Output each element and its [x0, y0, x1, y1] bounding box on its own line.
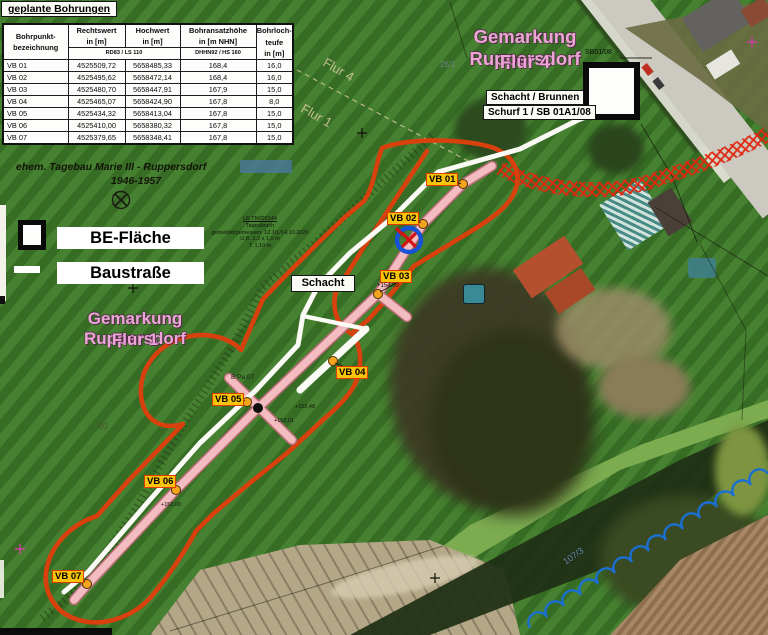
table-row: VB 04 4525465,07 5658424,90 167,8 8,0 — [3, 96, 293, 108]
cell: 15,0 — [256, 132, 293, 145]
table-row: VB 01 4525509,72 5658485,33 168,4 16,0 — [3, 60, 293, 72]
cell: 5658380,32 — [125, 120, 180, 132]
annotation-line: T. 1,10 m — [204, 243, 316, 250]
table-row: VB 06 4525410,00 5658380,32 167,8 15,0 — [3, 120, 293, 132]
bp-point-label: B Pu.07 — [231, 374, 254, 381]
legend-be-area-label: BE-Fläche — [57, 227, 204, 249]
elevation-label: +152,01 — [274, 418, 294, 424]
datum-header: DHHN92 / HS 160 — [180, 48, 256, 60]
cell: 8,0 — [256, 96, 293, 108]
cell: VB 02 — [3, 72, 68, 84]
cell: 5658424,90 — [125, 96, 180, 108]
cell: 4525480,70 — [68, 84, 125, 96]
table-row: VB 02 4525495,62 5658472,14 168,4 16,0 — [3, 72, 293, 84]
cell: 4525379,65 — [68, 132, 125, 145]
elevation-label: +152,48 — [295, 404, 315, 410]
datum-header: RD83 / LS 110 — [68, 48, 180, 60]
cell: 16,0 — [256, 60, 293, 72]
cell: VB 07 — [3, 132, 68, 145]
cell: VB 04 — [3, 96, 68, 108]
vb05-marker-label: VB 05 — [212, 393, 244, 406]
cell: 5658485,33 — [125, 60, 180, 72]
redaction-box — [240, 160, 292, 173]
cell: 5658447,91 — [125, 84, 180, 96]
vb03-marker-label: VB 03 — [380, 270, 412, 283]
vb02-marker-label: VB 02 — [387, 212, 419, 225]
col-header: Bohrpunkt- bezeichnung — [3, 24, 68, 60]
cell: 5658348,41 — [125, 132, 180, 145]
cell: 4525410,00 — [68, 120, 125, 132]
annotation-line: Tagesbruch — [204, 223, 316, 230]
red-hatched-fence — [500, 134, 768, 190]
cell: 5658472,14 — [125, 72, 180, 84]
cell: 167,8 — [180, 108, 256, 120]
vb01-marker-label: VB 01 — [426, 173, 458, 186]
cell: VB 05 — [3, 108, 68, 120]
tagebau-note-line2: 1946-1957 — [16, 175, 256, 187]
table-row: VB 07 4525379,65 5658348,41 167,8 15,0 — [3, 132, 293, 145]
cell: 167,8 — [180, 120, 256, 132]
vb06-marker-label: VB 06 — [144, 475, 176, 488]
col-header: Rechtswert in [m] — [68, 24, 125, 48]
cell: VB 01 — [3, 60, 68, 72]
shaft-dot — [253, 403, 263, 413]
schurf-label: Schurf 1 / SB 01A1/08 — [483, 105, 596, 120]
legend-road-symbol — [14, 266, 40, 273]
annotation-line: U,B. 1,2 x 1,0 m — [204, 236, 316, 243]
cell: 168,4 — [180, 72, 256, 84]
cell: 15,0 — [256, 84, 293, 96]
borehole-table: Bohrpunkt- bezeichnung Rechtswert in [m]… — [2, 23, 294, 145]
cell: 15,0 — [256, 108, 293, 120]
legend-road-label: Baustraße — [57, 262, 204, 284]
col-header: Hochwert in [m] — [125, 24, 180, 48]
site-plan-map: Flur 4 Flur 1 26/1 80 107/3 Gemarkung Ru… — [0, 0, 768, 635]
annotation-line: LB TN026144 — [204, 216, 316, 223]
cell: 15,0 — [256, 120, 293, 132]
ditch-scalloped-line — [528, 469, 768, 628]
table-row: VB 03 4525480,70 5658447,91 167,9 15,0 — [3, 84, 293, 96]
elevation-label: +152,00 — [161, 502, 181, 508]
schacht-label: Schacht — [291, 275, 355, 292]
sinkhole-annotation: LB TN026144 Tagesbruch gemeldet/gemessen… — [204, 216, 316, 250]
cell: 167,8 — [180, 132, 256, 145]
legend-be-area-symbol — [18, 220, 46, 250]
tagebau-note-line1: ehem. Tagebau Marie III - Ruppersdorf — [16, 161, 206, 173]
gemarkung-flur1-subtitle: Flur 1 — [37, 330, 233, 350]
cell: 168,4 — [180, 60, 256, 72]
cell: 4525434,32 — [68, 108, 125, 120]
cell: 4525509,72 — [68, 60, 125, 72]
parcel-number: 80 — [98, 421, 108, 431]
cell: 16,0 — [256, 72, 293, 84]
cell: 167,9 — [180, 84, 256, 96]
cell: 4525465,07 — [68, 96, 125, 108]
col-header: Bohrloch- teufe in [m] — [256, 24, 293, 60]
mining-symbol-icon — [113, 192, 130, 209]
vb07-marker-label: VB 07 — [52, 570, 84, 583]
vb04-marker-label: VB 04 — [336, 366, 368, 379]
col-header: Bohransatzhöhe in [m NHN] — [180, 24, 256, 48]
elevation-label: +154.00 — [377, 283, 399, 289]
cell: 167,8 — [180, 96, 256, 108]
cell: VB 03 — [3, 84, 68, 96]
table-title: geplante Bohrungen — [1, 1, 117, 17]
schacht-brunnen-label: Schacht / Brunnen — [486, 90, 584, 105]
cell: 5658413,04 — [125, 108, 180, 120]
survey-crosses — [128, 128, 440, 583]
cell: VB 06 — [3, 120, 68, 132]
cell: 4525495,62 — [68, 72, 125, 84]
sb-point-label: SB01/08 — [585, 49, 612, 56]
annotation-line: gemeldet/gemessen: 12.10./14.10.2020 — [204, 230, 316, 237]
table-row: VB 05 4525434,32 5658413,04 167,8 15,0 — [3, 108, 293, 120]
